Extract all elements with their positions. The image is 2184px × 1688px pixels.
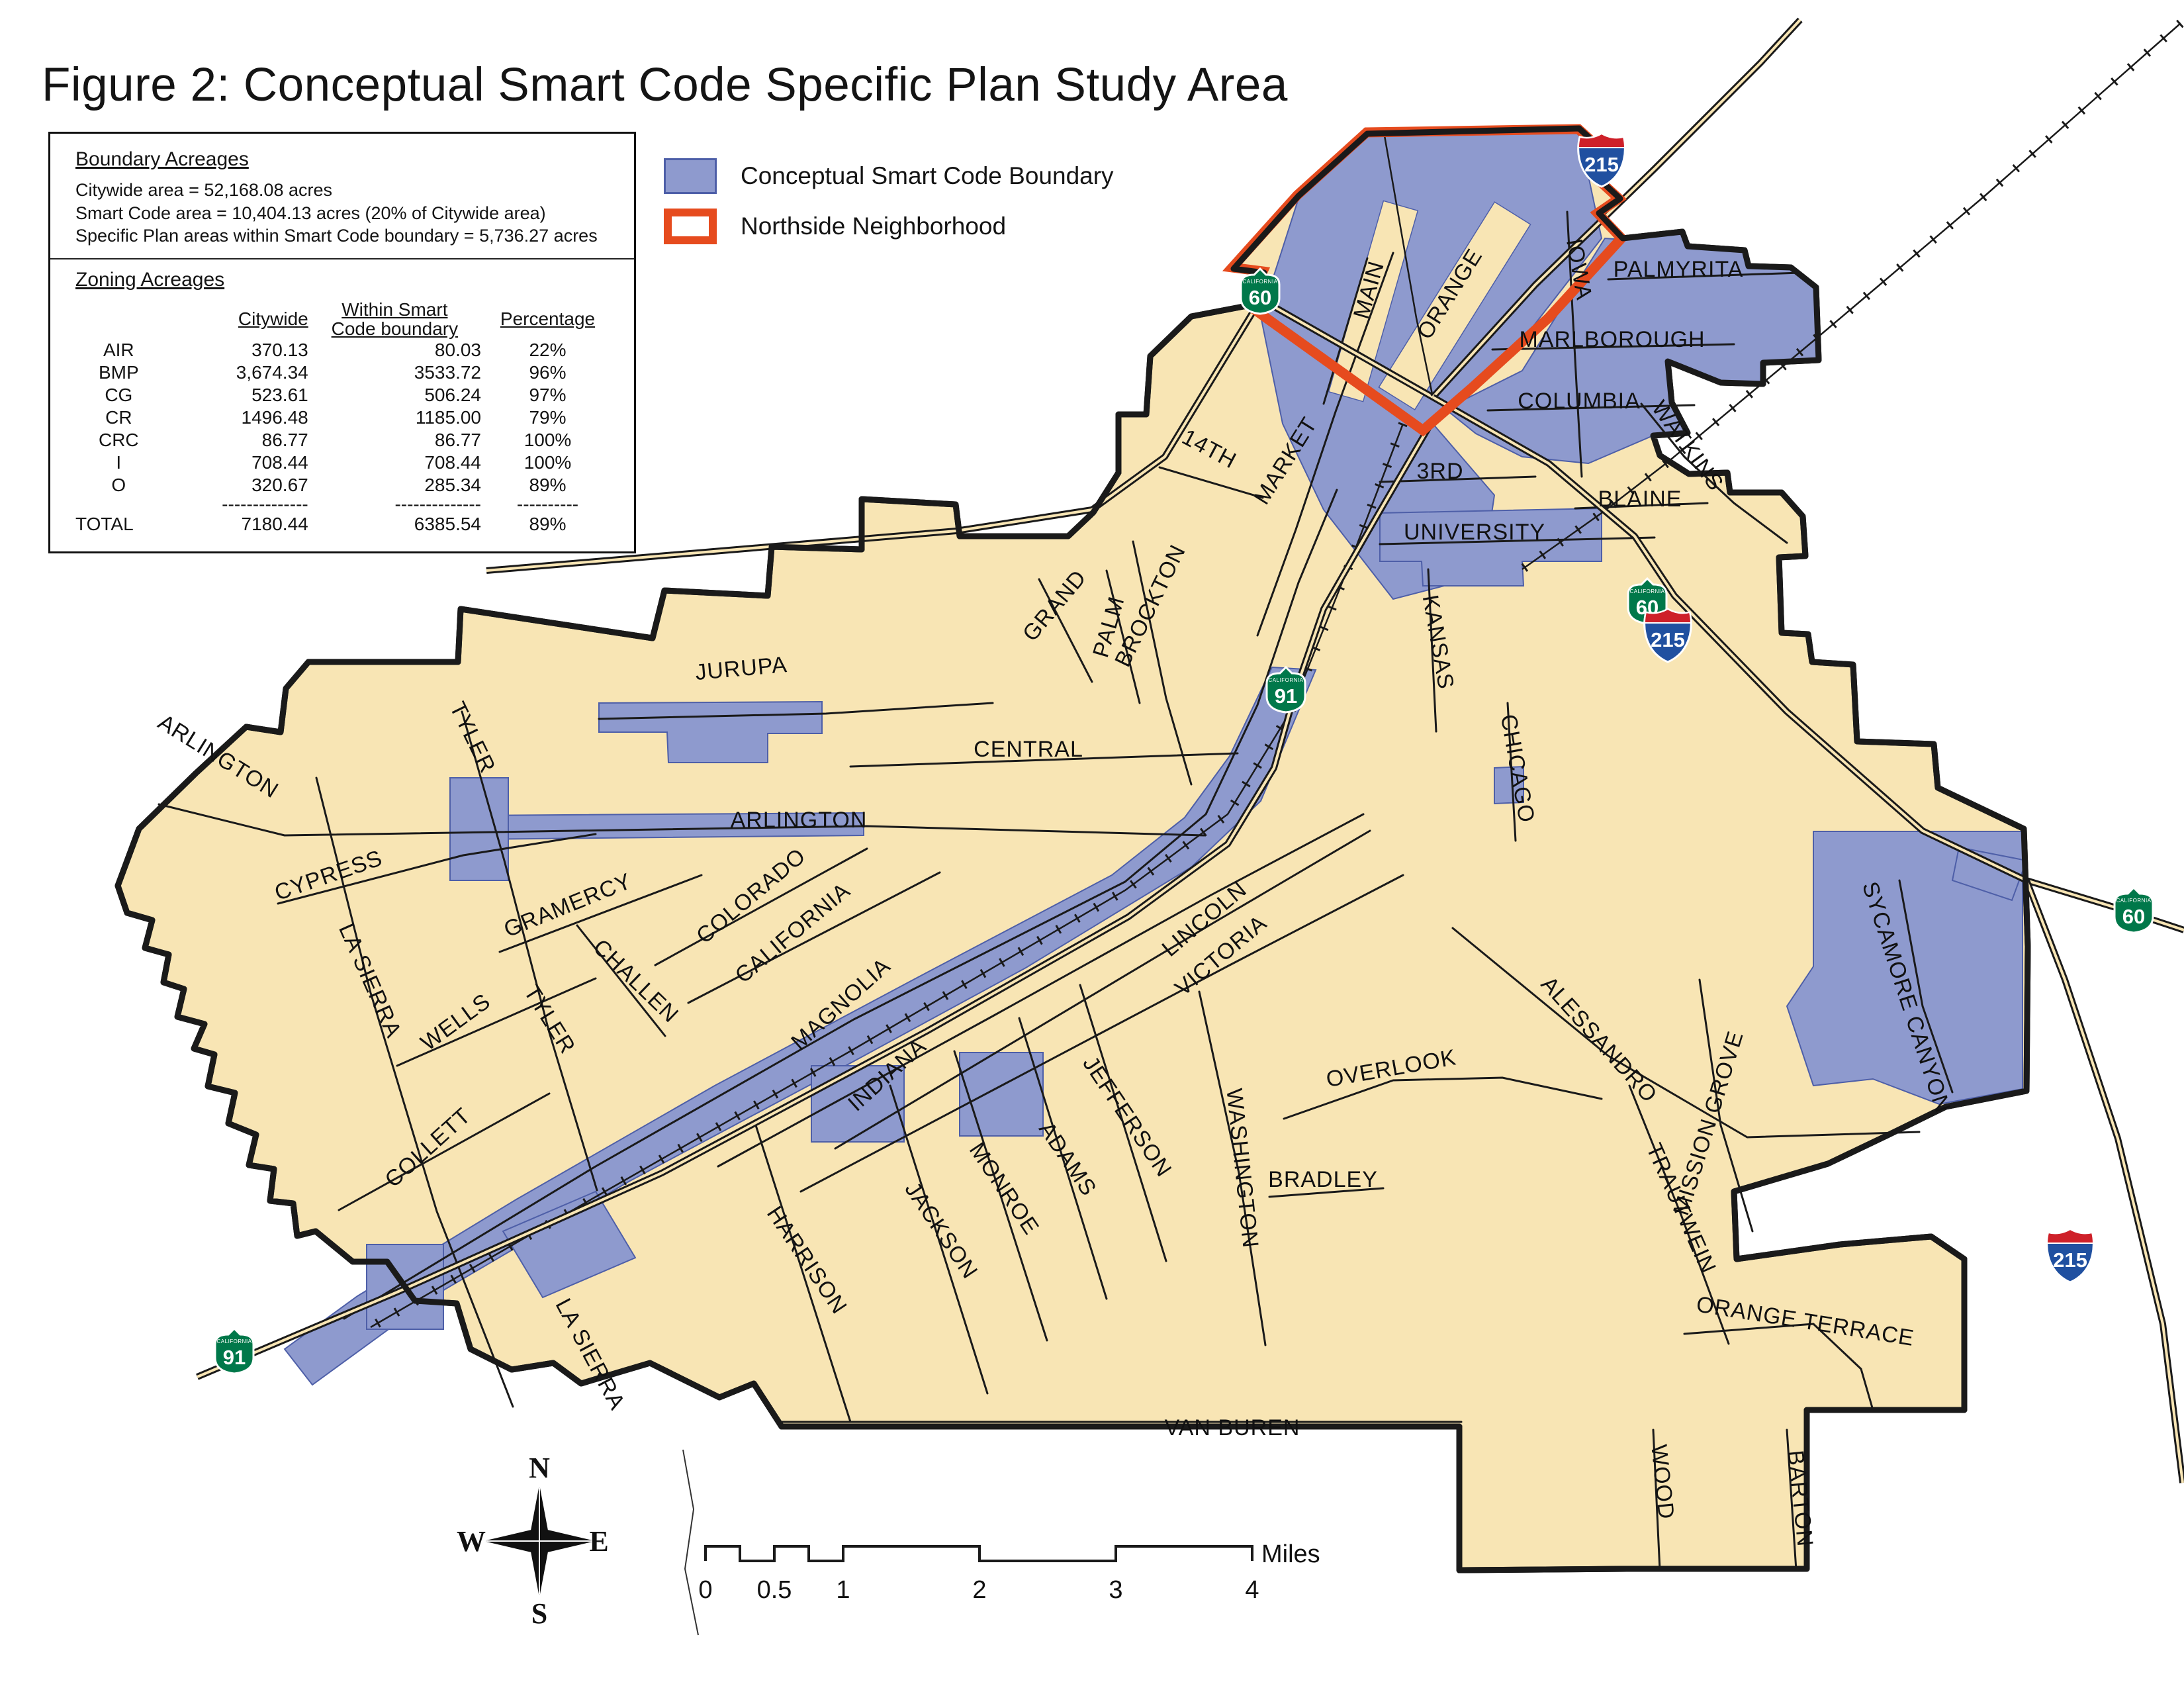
svg-text:CALIFORNIA: CALIFORNIA bbox=[216, 1338, 251, 1344]
svg-text:CALIFORNIA: CALIFORNIA bbox=[1242, 279, 1277, 285]
specific-plan-area-line: Specific Plan areas within Smart Code bo… bbox=[75, 224, 614, 248]
svg-text:60: 60 bbox=[2122, 905, 2145, 928]
zoning-header-row: Citywide Within Smart Code boundary Perc… bbox=[75, 299, 614, 340]
svg-text:215: 215 bbox=[1584, 153, 1619, 176]
compass-east-label: E bbox=[589, 1525, 608, 1558]
citywide-column-header: Citywide bbox=[238, 308, 308, 329]
legend-item-northside-neighborhood: Northside Neighborhood bbox=[664, 208, 1114, 245]
street-label-3rd: 3RD bbox=[1416, 459, 1463, 484]
street-label-bradley: BRADLEY bbox=[1268, 1167, 1378, 1192]
compass-west-label: W bbox=[457, 1525, 486, 1558]
street-label-arlington: ARLINGTON bbox=[731, 808, 868, 833]
zoning-row-bmp: BMP 3,674.34 3533.72 96% bbox=[75, 361, 614, 384]
scale-tick-1: 1 bbox=[836, 1576, 850, 1604]
citywide-area-line: Citywide area = 52,168.08 acres bbox=[75, 179, 614, 202]
street-label-blaine: BLAINE bbox=[1598, 487, 1682, 512]
zoning-dashes-row: -------------- -------------- ---------- bbox=[75, 496, 614, 512]
zoning-row-crc: CRC 86.77 86.77 100% bbox=[75, 429, 614, 451]
zoning-acreages-table: Citywide Within Smart Code boundary Perc… bbox=[75, 299, 614, 536]
scale-tick-2: 2 bbox=[972, 1576, 986, 1604]
street-label-central: CENTRAL bbox=[974, 737, 1083, 762]
compass-rose: N S W E bbox=[457, 1452, 609, 1630]
info-box-divider bbox=[50, 258, 634, 259]
svg-text:60: 60 bbox=[1249, 286, 1271, 309]
svg-text:CALIFORNIA: CALIFORNIA bbox=[2116, 898, 2151, 904]
figure-title: Figure 2: Conceptual Smart Code Specific… bbox=[42, 58, 1288, 112]
map-legend: Conceptual Smart Code Boundary Northside… bbox=[664, 158, 1114, 258]
street-label-palmyrita: PALMYRITA bbox=[1614, 257, 1744, 282]
interstate-215-shield-icon: 215 bbox=[2047, 1229, 2094, 1282]
figure-page: ARLINGTONCYPRESSLA SIERRATYLERJURUPAARLI… bbox=[0, 0, 2184, 1688]
zoning-acreages-heading: Zoning Acreages bbox=[75, 269, 614, 291]
within-smart-column-header-line1: Within Smart bbox=[341, 299, 447, 320]
scale-tick-3: 3 bbox=[1109, 1576, 1122, 1604]
svg-text:91: 91 bbox=[1275, 684, 1297, 708]
percentage-column-header: Percentage bbox=[500, 308, 595, 329]
svg-text:CALIFORNIA: CALIFORNIA bbox=[1629, 588, 1664, 594]
zoning-row-cr: CR 1496.48 1185.00 79% bbox=[75, 406, 614, 429]
zoning-row-o: O 320.67 285.34 89% bbox=[75, 474, 614, 496]
street-label-van-buren: VAN BUREN bbox=[1165, 1415, 1300, 1440]
scale-tick-0: 0 bbox=[698, 1576, 712, 1604]
svg-text:215: 215 bbox=[1651, 628, 1685, 651]
street-label-columbia: COLUMBIA bbox=[1518, 389, 1641, 414]
zoning-row-cg: CG 523.61 506.24 97% bbox=[75, 384, 614, 406]
scale-tick-labels: 00.51234 bbox=[698, 1576, 1259, 1604]
zoning-total-row: TOTAL 7180.44 6385.54 89% bbox=[75, 513, 614, 536]
ca-route-91-shield-icon: CALIFORNIA 91 bbox=[215, 1329, 253, 1374]
smart-code-area-line: Smart Code area = 10,404.13 acres (20% o… bbox=[75, 202, 614, 225]
zoning-row-air: AIR 370.13 80.03 22% bbox=[75, 339, 614, 361]
legend-item-label: Northside Neighborhood bbox=[741, 212, 1006, 240]
compass-south-label: S bbox=[531, 1597, 547, 1630]
ca-route-60-shield-icon: CALIFORNIA 60 bbox=[1241, 269, 1279, 314]
compass-north-label: N bbox=[529, 1452, 550, 1484]
scale-bar: 00.51234 Miles bbox=[698, 1540, 1320, 1604]
scale-unit-label: Miles bbox=[1261, 1540, 1320, 1568]
svg-text:215: 215 bbox=[2053, 1248, 2087, 1272]
svg-text:91: 91 bbox=[223, 1346, 246, 1369]
street-label-university: UNIVERSITY bbox=[1404, 520, 1545, 545]
within-smart-column-header-line2: Code boundary bbox=[332, 318, 458, 339]
scale-tick-4: 4 bbox=[1245, 1576, 1259, 1604]
ca-route-91-shield-icon: CALIFORNIA 91 bbox=[1267, 667, 1305, 712]
acreage-info-box: Boundary Acreages Citywide area = 52,168… bbox=[48, 132, 636, 553]
smart-code-swatch-icon bbox=[664, 158, 717, 194]
zoning-row-i: I 708.44 708.44 100% bbox=[75, 451, 614, 474]
scale-tick-0.5: 0.5 bbox=[757, 1576, 792, 1604]
northside-swatch-icon bbox=[664, 209, 717, 244]
ca-route-60-shield-icon: CALIFORNIA 60 bbox=[2115, 888, 2153, 933]
legend-item-smart-code-boundary: Conceptual Smart Code Boundary bbox=[664, 158, 1114, 195]
legend-item-label: Conceptual Smart Code Boundary bbox=[741, 162, 1114, 190]
street-label-marlborough: MARLBOROUGH bbox=[1519, 327, 1705, 352]
boundary-acreages-heading: Boundary Acreages bbox=[75, 148, 614, 171]
svg-text:CALIFORNIA: CALIFORNIA bbox=[1268, 677, 1303, 683]
